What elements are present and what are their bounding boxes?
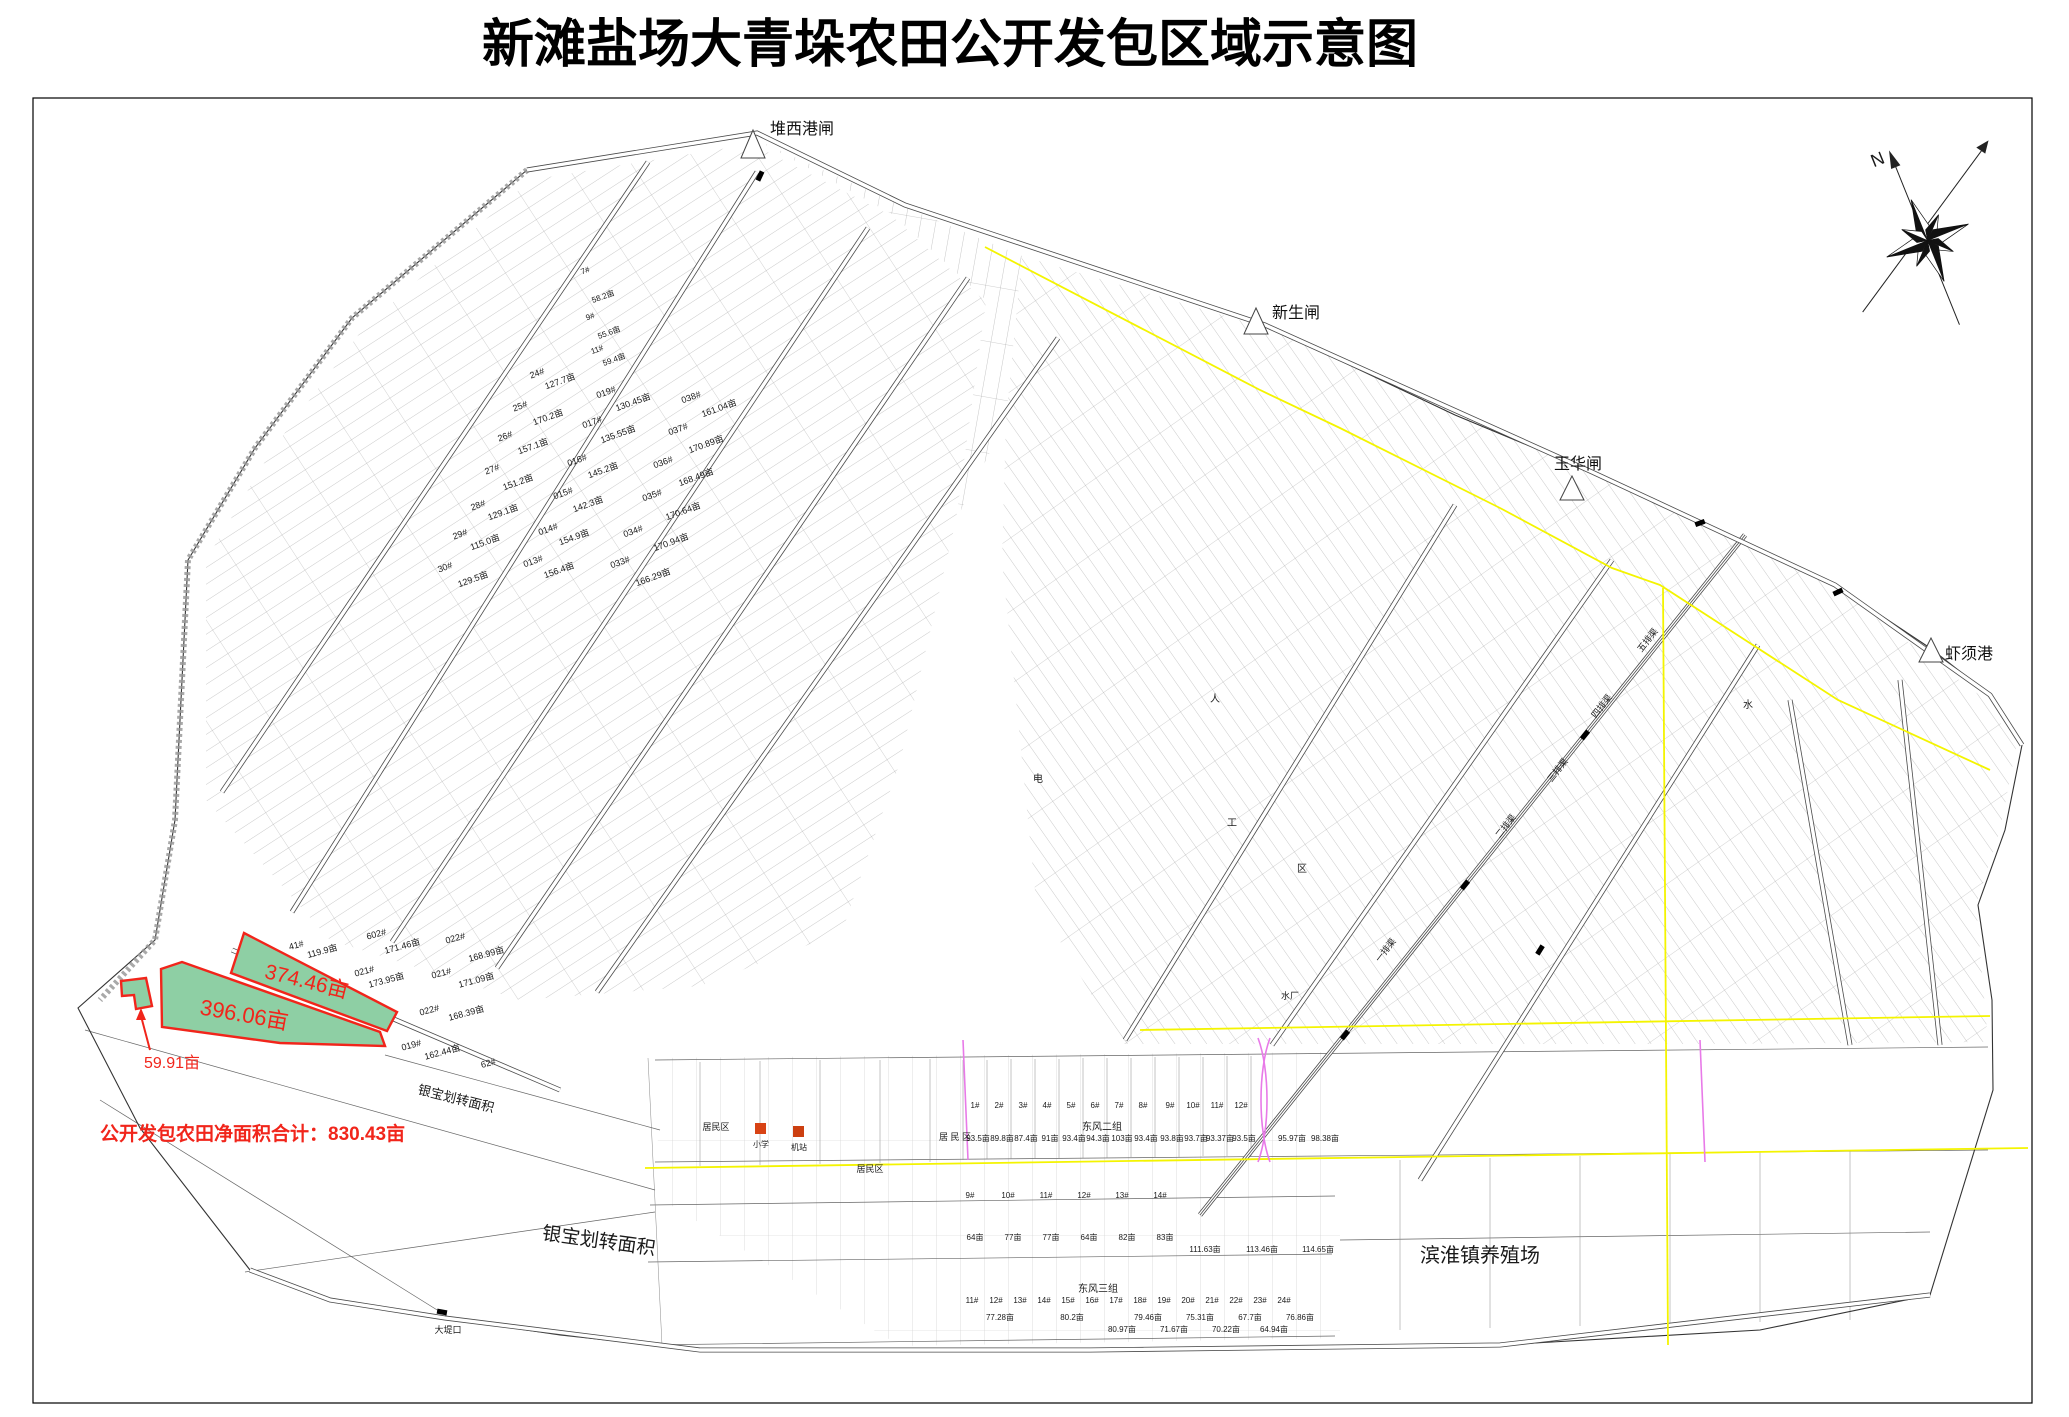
map-label: 80.97亩 [1108, 1324, 1136, 1334]
map-label: 8# [1139, 1101, 1148, 1110]
map-label: 79.46亩 [1134, 1312, 1162, 1322]
map-label: 82亩 [1119, 1232, 1136, 1242]
map-label: 87.4亩 [1014, 1133, 1038, 1143]
map-label: 14# [1153, 1191, 1167, 1200]
map-label: 41# [288, 938, 305, 952]
map-label: 大堤口 [434, 1324, 461, 1335]
map-label: 77亩 [1043, 1232, 1060, 1242]
map-label: 93.5亩 [966, 1133, 990, 1143]
station-marker [793, 1126, 804, 1137]
map-label: 16# [1085, 1296, 1099, 1305]
map-label: 64亩 [1081, 1232, 1098, 1242]
map-label: 019# [400, 1038, 422, 1053]
map-label: 83亩 [1157, 1232, 1174, 1242]
map-label: 103亩 [1111, 1133, 1132, 1143]
map-label: 堆西港闸 [770, 120, 834, 138]
map-label: 13# [1115, 1191, 1129, 1200]
map-label: 12# [989, 1296, 1003, 1305]
map-label: 77.28亩 [986, 1312, 1014, 1322]
map-label: 80.2亩 [1060, 1312, 1084, 1322]
map-label: 玉华闸 [1554, 455, 1602, 473]
map-label: 3# [1019, 1101, 1028, 1110]
map-label: 24# [1277, 1296, 1291, 1305]
map-label: 14# [1037, 1296, 1051, 1305]
map-page: 374.46亩396.06亩59.91亩银宝划转面积银宝划转面积滨淮镇养殖场东风… [0, 0, 2069, 1417]
map-label: 6# [1091, 1101, 1100, 1110]
map-label: 9# [1166, 1101, 1175, 1110]
map-label: 15# [1061, 1296, 1075, 1305]
map-label: 人 [1210, 693, 1220, 705]
map-label: 5# [1067, 1101, 1076, 1110]
map-label: 59.91亩 [144, 1054, 200, 1072]
map-label: 93.5亩 [1232, 1133, 1256, 1143]
parcel-texture [206, 140, 2016, 1346]
map-label: 70.22亩 [1212, 1324, 1240, 1334]
map-label: 小学 [753, 1139, 769, 1149]
map-label: 7# [1115, 1101, 1124, 1110]
map-label: 168.39亩 [447, 1003, 485, 1023]
map-label: 93.4亩 [1134, 1133, 1158, 1143]
map-label: 12# [1234, 1101, 1248, 1110]
map-label: 工 [1227, 818, 1237, 829]
map-label: 区 [1297, 863, 1307, 875]
map-label: 2# [995, 1101, 1004, 1110]
map-label: 67.7亩 [1238, 1312, 1262, 1322]
map-label: 19# [1157, 1296, 1171, 1305]
compass-north-label: N [1868, 148, 1888, 171]
map-label: 119.9亩 [306, 941, 339, 960]
map-label: 21# [1205, 1296, 1219, 1305]
parcel-59-arrow [141, 1016, 150, 1050]
southwest-area-lines [85, 1030, 660, 1318]
map-label: 95.97亩 [1278, 1133, 1306, 1143]
map-label: 71.67亩 [1160, 1324, 1188, 1334]
map-label: 银宝划转面积 [541, 1222, 657, 1260]
map-label: 11# [1211, 1101, 1224, 1110]
school-marker [755, 1123, 766, 1134]
map-label: 111.63亩 [1189, 1244, 1220, 1254]
map-label: 水 [1743, 699, 1753, 711]
map-label: 1# [971, 1101, 980, 1110]
map-label: 64亩 [967, 1232, 984, 1242]
map-label: 东风三组 [1078, 1282, 1118, 1295]
map-label: 22# [1229, 1296, 1243, 1305]
map-label: 机站 [791, 1142, 807, 1152]
compass-icon: N [1808, 109, 2048, 357]
map-label: 93.7亩 [1184, 1133, 1208, 1143]
map-label: 94.3亩 [1086, 1133, 1110, 1143]
map-label: 新生闸 [1272, 304, 1320, 322]
map-label: 9# [966, 1191, 975, 1200]
map-label: 虾须港 [1945, 645, 1993, 663]
farmland-map-canvas: 374.46亩396.06亩59.91亩银宝划转面积银宝划转面积滨淮镇养殖场东风… [0, 0, 2069, 1417]
map-label: 17# [1109, 1296, 1123, 1305]
map-label: 93.37亩 [1206, 1133, 1234, 1143]
map-label: 居民区 [856, 1164, 883, 1174]
map-label: 10# [1001, 1191, 1015, 1200]
map-label: 银宝划转面积 [416, 1082, 495, 1115]
map-label: 93.4亩 [1062, 1133, 1086, 1143]
map-label: 75.31亩 [1186, 1312, 1214, 1322]
map-label: 20# [1181, 1296, 1195, 1305]
map-label: 022# [418, 1003, 440, 1018]
map-label: 13# [1013, 1296, 1027, 1305]
map-label: 98.38亩 [1311, 1133, 1339, 1143]
parcel-59 [121, 978, 152, 1009]
page-title: 新滩盐场大青垛农田公开发包区域示意图 [482, 16, 1418, 74]
map-label: 021# [353, 964, 375, 979]
map-label: 电 [1033, 772, 1043, 785]
map-label: 18# [1133, 1296, 1147, 1305]
map-label: 12# [1077, 1191, 1091, 1200]
total-area-note: 公开发包农田净面积合计：830.43亩 [100, 1122, 405, 1145]
map-label: 162.44亩 [423, 1042, 461, 1062]
map-label: 114.65亩 [1302, 1244, 1334, 1254]
map-label: 10# [1186, 1101, 1200, 1110]
map-label: 滨淮镇养殖场 [1420, 1244, 1540, 1267]
map-label: 76.86亩 [1286, 1312, 1314, 1322]
map-label: 23# [1253, 1296, 1267, 1305]
map-label: 水厂 [1281, 990, 1299, 1001]
map-label: 91亩 [1042, 1133, 1059, 1143]
map-label: 东风二组 [1082, 1120, 1122, 1133]
map-label: 11# [1040, 1191, 1053, 1200]
map-label: 89.8亩 [990, 1133, 1014, 1143]
map-label: 113.46亩 [1246, 1244, 1278, 1254]
map-label: 93.8亩 [1160, 1133, 1184, 1143]
highlighted-parcels [121, 933, 397, 1050]
map-label: 64.94亩 [1260, 1324, 1288, 1334]
map-label: 居民区 [702, 1122, 729, 1132]
map-label: 4# [1043, 1101, 1052, 1110]
map-label: 77亩 [1005, 1232, 1022, 1242]
map-label: 11# [966, 1296, 979, 1305]
